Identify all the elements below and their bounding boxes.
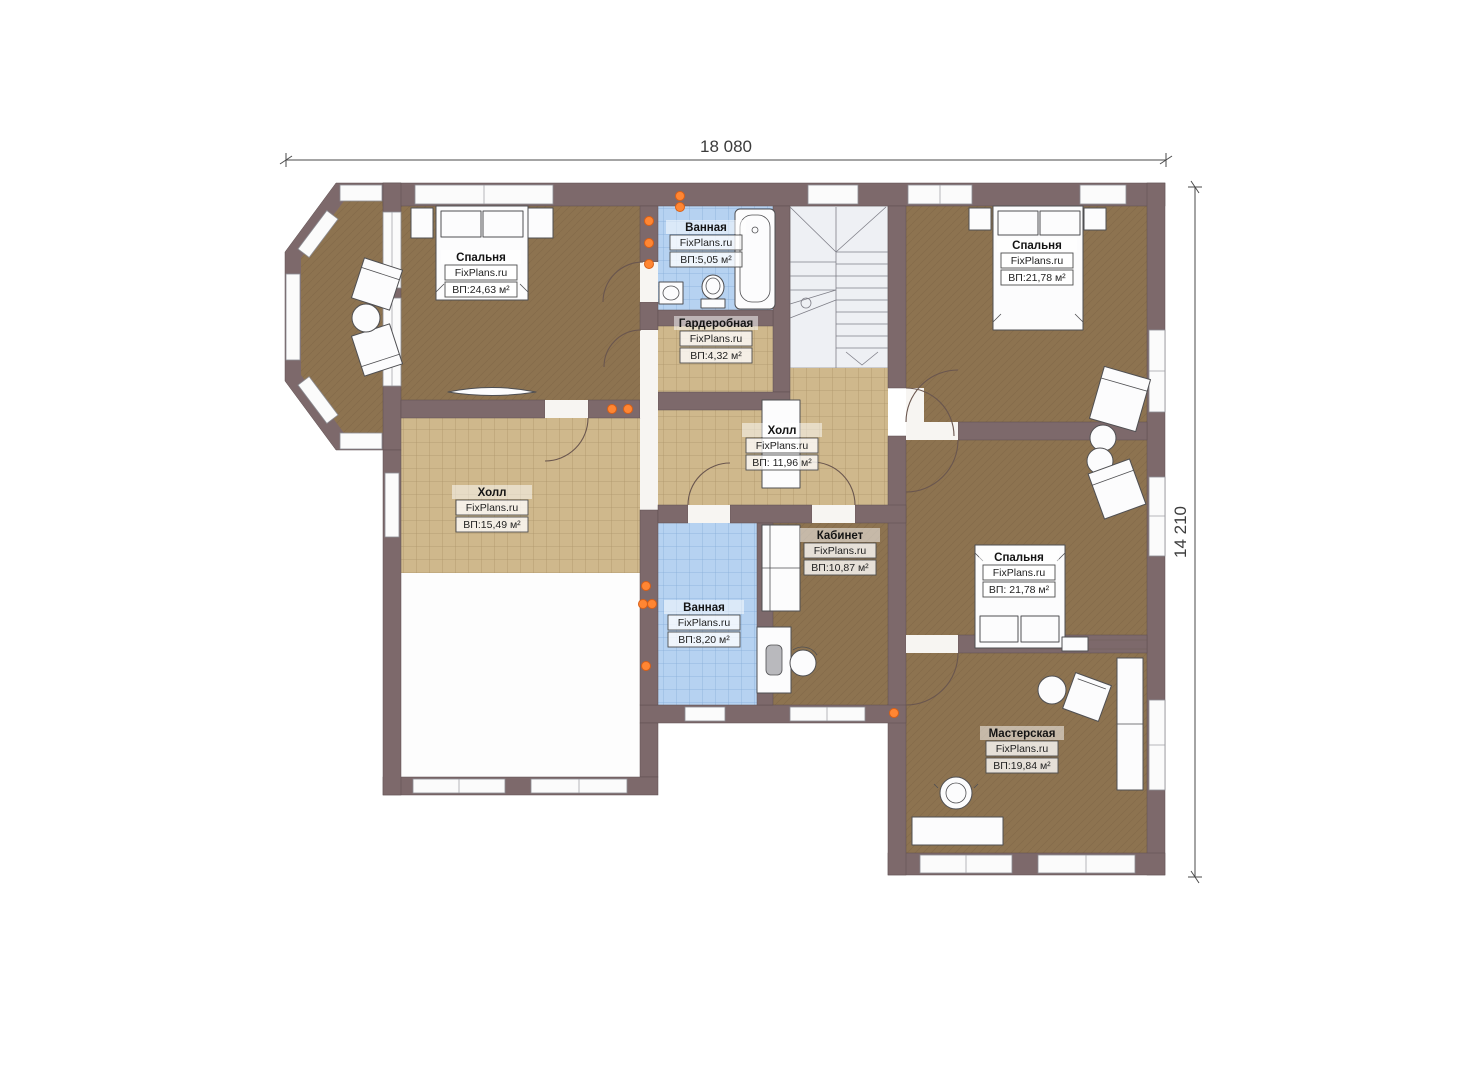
- floor-plan-canvas: 18 080 14 210 Спальня FixPlans.ru ВП:24,…: [0, 0, 1474, 1080]
- desk-monitor: [766, 645, 782, 675]
- hall-threshold: [640, 418, 658, 510]
- workbench: [912, 817, 1003, 845]
- room-label-workshop: Мастерская FixPlans.ru ВП:19,84 м²: [980, 726, 1064, 773]
- wall-bl-right: [640, 723, 658, 777]
- room-label-hall-middle: Холл FixPlans.ru ВП: 11,96 м²: [742, 423, 822, 470]
- room-name: Ванная: [685, 222, 727, 234]
- socket-icon: [676, 192, 685, 201]
- empty-room-floor: [401, 573, 640, 777]
- socket-icon: [648, 600, 657, 609]
- socket-icon: [645, 217, 654, 226]
- wall-a-seg2: [640, 302, 658, 330]
- wall-d-seg1: [658, 505, 688, 523]
- pillow: [980, 616, 1018, 642]
- window: [1149, 477, 1165, 556]
- stool: [1038, 676, 1066, 704]
- window: [685, 707, 725, 721]
- room-watermark: FixPlans.ru: [690, 333, 743, 345]
- room-watermark: FixPlans.ru: [466, 502, 519, 514]
- room-label-bathroom-1: Ванная FixPlans.ru ВП:5,05 м²: [666, 220, 746, 267]
- wall-b-upper: [888, 206, 906, 388]
- bay-window: [340, 185, 382, 201]
- room-area: ВП:24,63 м²: [452, 284, 510, 296]
- room-label-wardrobe: Гардеробная FixPlans.ru ВП:4,32 м²: [674, 316, 758, 363]
- window: [1149, 700, 1165, 790]
- wall-mid-bottom: [640, 705, 906, 723]
- window: [531, 779, 627, 793]
- room-label-bedroom-1: Спальня FixPlans.ru ВП:24,63 м²: [441, 250, 521, 297]
- toilet: [702, 275, 724, 299]
- staircase-floor: [790, 206, 888, 368]
- room-area: ВП:4,32 м²: [690, 350, 742, 362]
- nightstand: [411, 208, 433, 238]
- socket-icon: [645, 239, 654, 248]
- pot: [940, 777, 972, 809]
- wall-b-lower: [888, 436, 906, 875]
- dimension-width: 18 080: [700, 137, 752, 156]
- nightstand: [528, 208, 553, 238]
- window: [413, 779, 505, 793]
- socket-icon: [642, 662, 651, 671]
- pillow: [1040, 211, 1080, 235]
- window: [1149, 330, 1165, 412]
- bench: [1062, 637, 1088, 651]
- room-watermark: FixPlans.ru: [455, 267, 508, 279]
- socket-icon: [645, 260, 654, 269]
- room-area: ВП:21,78 м²: [1008, 272, 1066, 284]
- pillow: [483, 211, 523, 237]
- window: [908, 185, 972, 204]
- room-area: ВП:5,05 м²: [680, 254, 732, 266]
- pillow: [1021, 616, 1059, 642]
- window: [790, 707, 865, 721]
- room-area: ВП: 11,96 м²: [752, 457, 812, 469]
- socket-icon: [639, 600, 648, 609]
- room-watermark: FixPlans.ru: [680, 237, 733, 249]
- socket-icon: [624, 405, 633, 414]
- nightstand: [1084, 208, 1106, 230]
- dimension-height: 14 210: [1171, 506, 1190, 558]
- wall-a-seg1: [640, 206, 658, 262]
- wall-d-seg2: [730, 505, 812, 523]
- room-watermark: FixPlans.ru: [996, 743, 1049, 755]
- room-name: Ванная: [683, 602, 725, 614]
- room-name: Спальня: [456, 252, 506, 264]
- room-name: Гардеробная: [679, 318, 753, 330]
- room-name: Мастерская: [989, 728, 1056, 740]
- window: [808, 185, 858, 204]
- socket-icon: [608, 405, 617, 414]
- room-label-office: Кабинет FixPlans.ru ВП:10,87 м²: [800, 528, 880, 575]
- pillow: [441, 211, 481, 237]
- socket-icon: [890, 709, 899, 718]
- room-watermark: FixPlans.ru: [756, 440, 809, 452]
- room-area: ВП:19,84 м²: [993, 760, 1051, 772]
- socket-icon: [676, 203, 685, 212]
- wall-c-left: [401, 400, 545, 418]
- room-label-bedroom-mid-right: Спальня FixPlans.ru ВП: 21,78 м²: [979, 550, 1059, 597]
- wall-left-stub3: [383, 386, 401, 450]
- room-label-hall-left: Холл FixPlans.ru ВП:15,49 м²: [452, 485, 532, 532]
- window: [1038, 855, 1135, 873]
- window: [1080, 185, 1126, 204]
- chair: [1090, 425, 1116, 451]
- chair: [790, 650, 816, 676]
- room-name: Кабинет: [817, 530, 864, 542]
- wall-stair-left: [773, 206, 790, 392]
- wall-d-seg3: [855, 505, 906, 523]
- room-name: Холл: [478, 487, 507, 499]
- window: [415, 185, 553, 204]
- floor-plan-drawing: 18 080 14 210 Спальня FixPlans.ru ВП:24,…: [0, 0, 1474, 1080]
- window: [385, 473, 399, 537]
- room-name: Спальня: [1012, 240, 1062, 252]
- room-watermark: FixPlans.ru: [993, 567, 1046, 579]
- pillow: [998, 211, 1038, 235]
- room-watermark: FixPlans.ru: [1011, 255, 1064, 267]
- room-area: ВП:15,49 м²: [463, 519, 521, 531]
- room-name: Спальня: [994, 552, 1044, 564]
- room-label-bedroom-top-right: Спальня FixPlans.ru ВП:21,78 м²: [997, 238, 1077, 285]
- hall-middle-floor-strip: [790, 368, 888, 410]
- nightstand: [969, 208, 991, 230]
- room-watermark: FixPlans.ru: [678, 617, 731, 629]
- bay-window: [340, 433, 382, 449]
- socket-icon: [642, 582, 651, 591]
- room-name: Холл: [768, 425, 797, 437]
- room-watermark: FixPlans.ru: [814, 545, 867, 557]
- window: [920, 855, 1012, 873]
- round-table: [352, 304, 380, 332]
- wall-left-stub1: [383, 183, 401, 212]
- room-area: ВП: 21,78 м²: [989, 584, 1050, 596]
- room-area: ВП:8,20 м²: [678, 634, 730, 646]
- bay-window: [286, 274, 300, 360]
- toilet-tank: [701, 299, 725, 308]
- room-area: ВП:10,87 м²: [811, 562, 869, 574]
- room-label-bathroom-2: Ванная FixPlans.ru ВП:8,20 м²: [664, 600, 744, 647]
